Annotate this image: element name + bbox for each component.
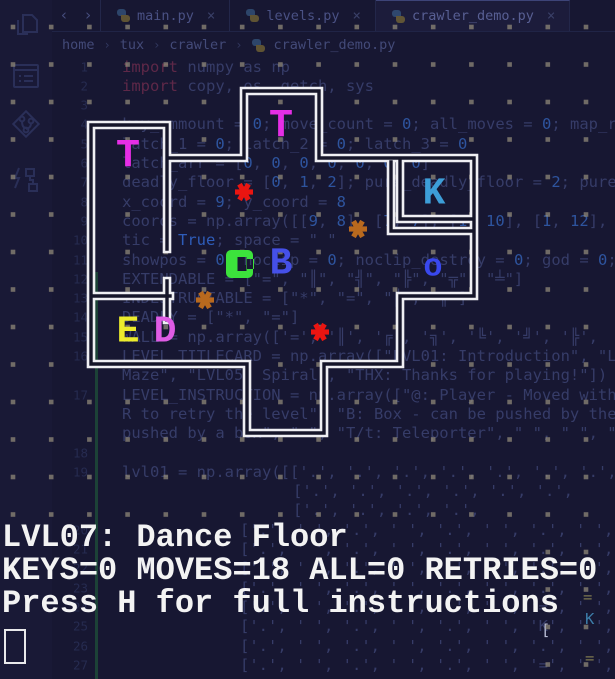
app-window: ‹ › main.py×levels.py×crawler_demo.py× h… [0, 0, 615, 679]
entity-door: D [154, 311, 177, 354]
entity-exit: E [117, 311, 140, 354]
status-line: KEYS=0 MOVES=18 ALL=0 RETRIES=0 [2, 554, 597, 587]
status-line: Press H for full instructions [2, 587, 597, 620]
entity-breakable-star [349, 220, 367, 238]
entity-teleporter: T [269, 105, 293, 150]
entity-hole: o [423, 249, 442, 286]
entity-breakable-star [196, 291, 214, 309]
terminal-cursor [4, 629, 26, 664]
entity-player [226, 250, 254, 278]
entity-box: B [270, 243, 293, 286]
entity-teleporter: T [116, 135, 140, 180]
entity-key: K [423, 173, 446, 216]
entity-deadly-star [235, 183, 253, 201]
game-status-text: LVL07: Dance FloorKEYS=0 MOVES=18 ALL=0 … [2, 521, 597, 620]
status-line: LVL07: Dance Floor [2, 521, 597, 554]
